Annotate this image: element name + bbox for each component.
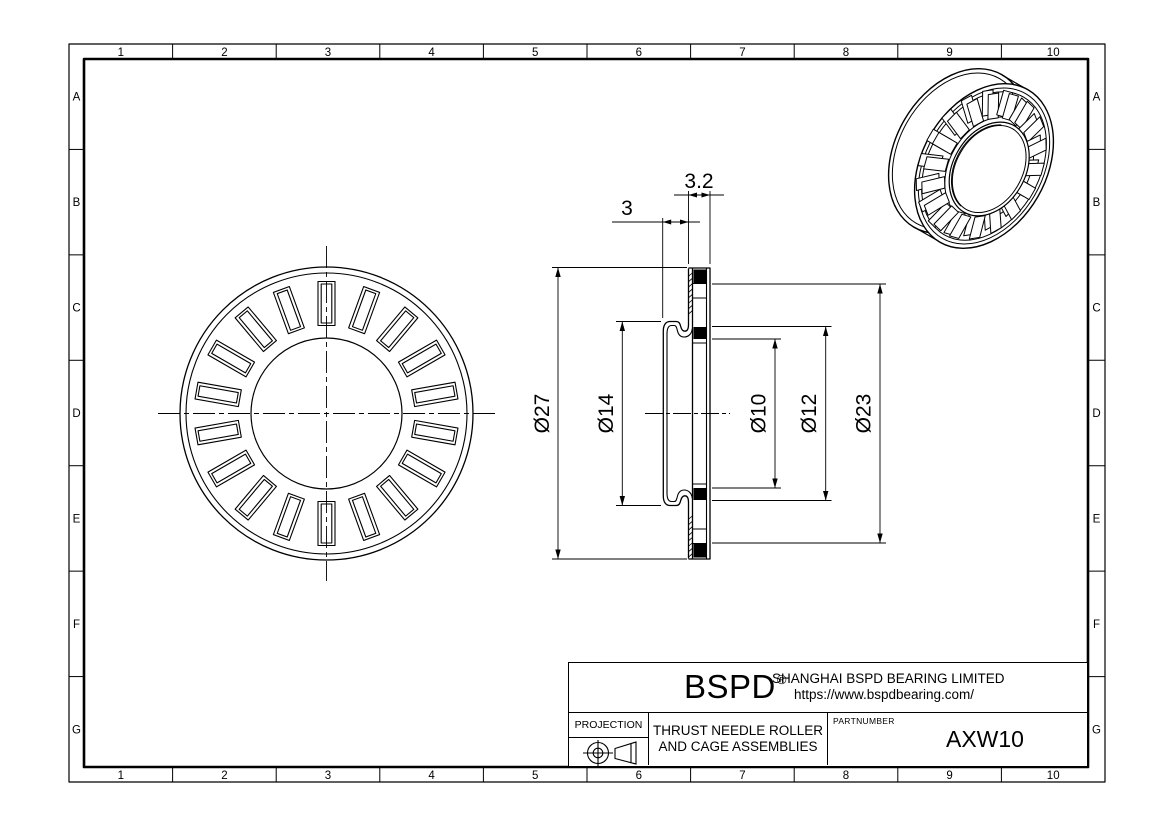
svg-text:6: 6 xyxy=(636,770,642,782)
svg-text:3: 3 xyxy=(325,47,331,59)
company-name: SHANGHAI BSPD BEARING LIMITED xyxy=(772,671,996,687)
svg-text:A: A xyxy=(73,92,81,104)
projection-symbol-cell xyxy=(569,738,649,765)
svg-text:8: 8 xyxy=(843,47,849,59)
company-website: https://www.bspdbearing.com/ xyxy=(772,687,996,703)
svg-text:5: 5 xyxy=(532,770,538,782)
svg-text:A: A xyxy=(1093,92,1101,104)
svg-text:Ø27: Ø27 xyxy=(531,394,554,434)
svg-text:C: C xyxy=(1092,303,1100,315)
svg-text:Ø14: Ø14 xyxy=(595,393,618,433)
dim-washer-width: 3 xyxy=(612,197,700,318)
svg-text:E: E xyxy=(1093,513,1101,525)
first-angle-projection-icon xyxy=(570,738,648,766)
svg-text:G: G xyxy=(1092,724,1101,736)
svg-text:6: 6 xyxy=(636,47,642,59)
svg-text:3.2: 3.2 xyxy=(684,170,713,193)
drawing-page: 1122334455667788991010AABBCCDDEEFFGG xyxy=(0,0,1170,827)
partnumber-cell: PARTNUMBER AXW10 xyxy=(828,713,1087,765)
svg-text:10: 10 xyxy=(1047,47,1060,59)
dimensions: 3.2 3 Ø27 Ø14 xyxy=(531,170,886,559)
front-view xyxy=(158,246,495,581)
svg-text:7: 7 xyxy=(739,770,745,782)
svg-text:2: 2 xyxy=(221,47,227,59)
svg-text:8: 8 xyxy=(843,770,849,782)
svg-text:Ø10: Ø10 xyxy=(748,394,771,434)
svg-text:D: D xyxy=(72,408,80,420)
title-block-company-row: BSPD® SHANGHAI BSPD BEARING LIMITED http… xyxy=(569,663,1087,713)
dim-cage-width: 3.2 xyxy=(674,170,724,264)
logo-text: BSPD xyxy=(684,668,776,705)
front-centerlines xyxy=(158,246,495,581)
svg-text:3: 3 xyxy=(621,197,633,220)
svg-text:Ø23: Ø23 xyxy=(853,394,876,434)
svg-text:Ø12: Ø12 xyxy=(798,394,821,434)
svg-text:7: 7 xyxy=(739,47,745,59)
partnumber-label: PARTNUMBER xyxy=(833,716,895,726)
svg-text:G: G xyxy=(72,724,81,736)
svg-text:D: D xyxy=(1092,408,1100,420)
projection-label: PROJECTION xyxy=(569,713,649,738)
product-title: THRUST NEEDLE ROLLER AND CAGE ASSEMBLIES xyxy=(649,713,828,765)
product-title-line2: AND CAGE ASSEMBLIES xyxy=(658,739,817,755)
partnumber-value: AXW10 xyxy=(828,726,1087,753)
isometric-view xyxy=(860,44,1081,273)
svg-text:F: F xyxy=(1093,619,1100,631)
section-view xyxy=(645,268,730,559)
svg-text:F: F xyxy=(73,619,80,631)
svg-text:9: 9 xyxy=(946,47,952,59)
svg-text:B: B xyxy=(73,197,81,209)
title-block: BSPD® SHANGHAI BSPD BEARING LIMITED http… xyxy=(568,662,1088,767)
svg-text:4: 4 xyxy=(428,770,435,782)
svg-text:B: B xyxy=(1093,197,1101,209)
svg-text:1: 1 xyxy=(118,770,124,782)
svg-text:5: 5 xyxy=(532,47,538,59)
svg-text:3: 3 xyxy=(325,770,331,782)
svg-text:2: 2 xyxy=(221,770,227,782)
svg-text:9: 9 xyxy=(946,770,952,782)
svg-text:10: 10 xyxy=(1047,770,1060,782)
svg-text:1: 1 xyxy=(118,47,124,59)
svg-text:C: C xyxy=(72,303,80,315)
svg-text:E: E xyxy=(73,513,81,525)
svg-text:4: 4 xyxy=(428,47,435,59)
product-title-line1: THRUST NEEDLE ROLLER xyxy=(653,723,823,739)
